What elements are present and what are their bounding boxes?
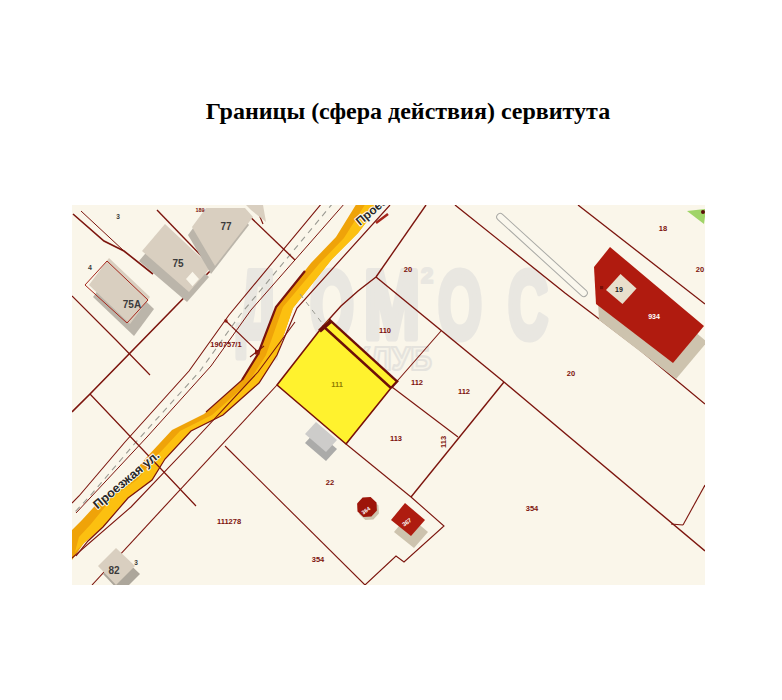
svg-text:4: 4 <box>88 264 92 271</box>
svg-text:22: 22 <box>326 478 334 487</box>
svg-text:3: 3 <box>134 559 138 566</box>
svg-text:77: 77 <box>220 221 232 232</box>
svg-text:190757/1: 190757/1 <box>210 340 241 349</box>
svg-text:934: 934 <box>648 313 660 320</box>
svg-text:354: 354 <box>526 504 539 513</box>
svg-text:20: 20 <box>567 369 575 378</box>
svg-text:75A: 75A <box>123 299 141 310</box>
svg-text:3: 3 <box>116 213 120 220</box>
svg-text:О: О <box>438 251 482 358</box>
svg-text:111278: 111278 <box>217 517 241 526</box>
svg-text:111: 111 <box>331 380 343 389</box>
svg-text:113: 113 <box>439 436 448 448</box>
svg-text:354: 354 <box>312 555 325 564</box>
svg-text:82: 82 <box>108 565 120 576</box>
svg-text:20: 20 <box>404 265 412 274</box>
svg-text:С: С <box>508 251 548 358</box>
svg-text:18: 18 <box>659 224 667 233</box>
svg-text:19: 19 <box>615 286 623 293</box>
svg-text:75: 75 <box>172 258 184 269</box>
svg-text:112: 112 <box>411 378 423 387</box>
svg-text:20: 20 <box>696 265 704 274</box>
svg-text:2: 2 <box>421 263 433 288</box>
svg-text:112: 112 <box>458 387 470 396</box>
svg-text:110: 110 <box>379 326 391 335</box>
svg-text:113: 113 <box>390 434 402 443</box>
svg-text:189: 189 <box>195 207 204 213</box>
